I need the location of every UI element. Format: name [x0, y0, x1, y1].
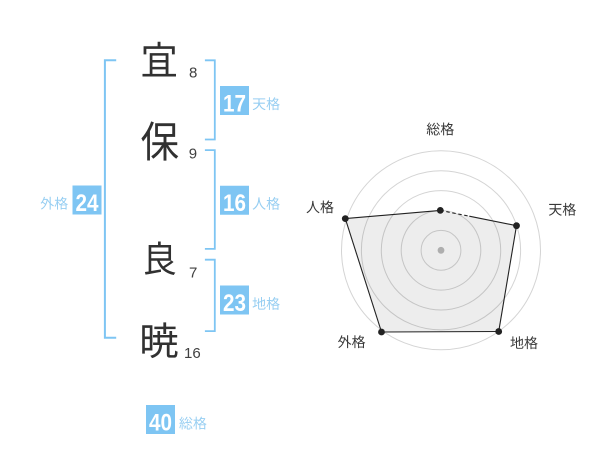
svg-text:16: 16 — [223, 190, 246, 217]
svg-text:17: 17 — [223, 90, 246, 117]
svg-text:9: 9 — [189, 145, 197, 162]
svg-text:23: 23 — [223, 290, 246, 317]
svg-text:24: 24 — [76, 190, 100, 217]
svg-text:16: 16 — [184, 345, 201, 362]
svg-text:7: 7 — [189, 265, 197, 282]
svg-text:40: 40 — [149, 409, 172, 436]
svg-text:8: 8 — [189, 65, 197, 82]
